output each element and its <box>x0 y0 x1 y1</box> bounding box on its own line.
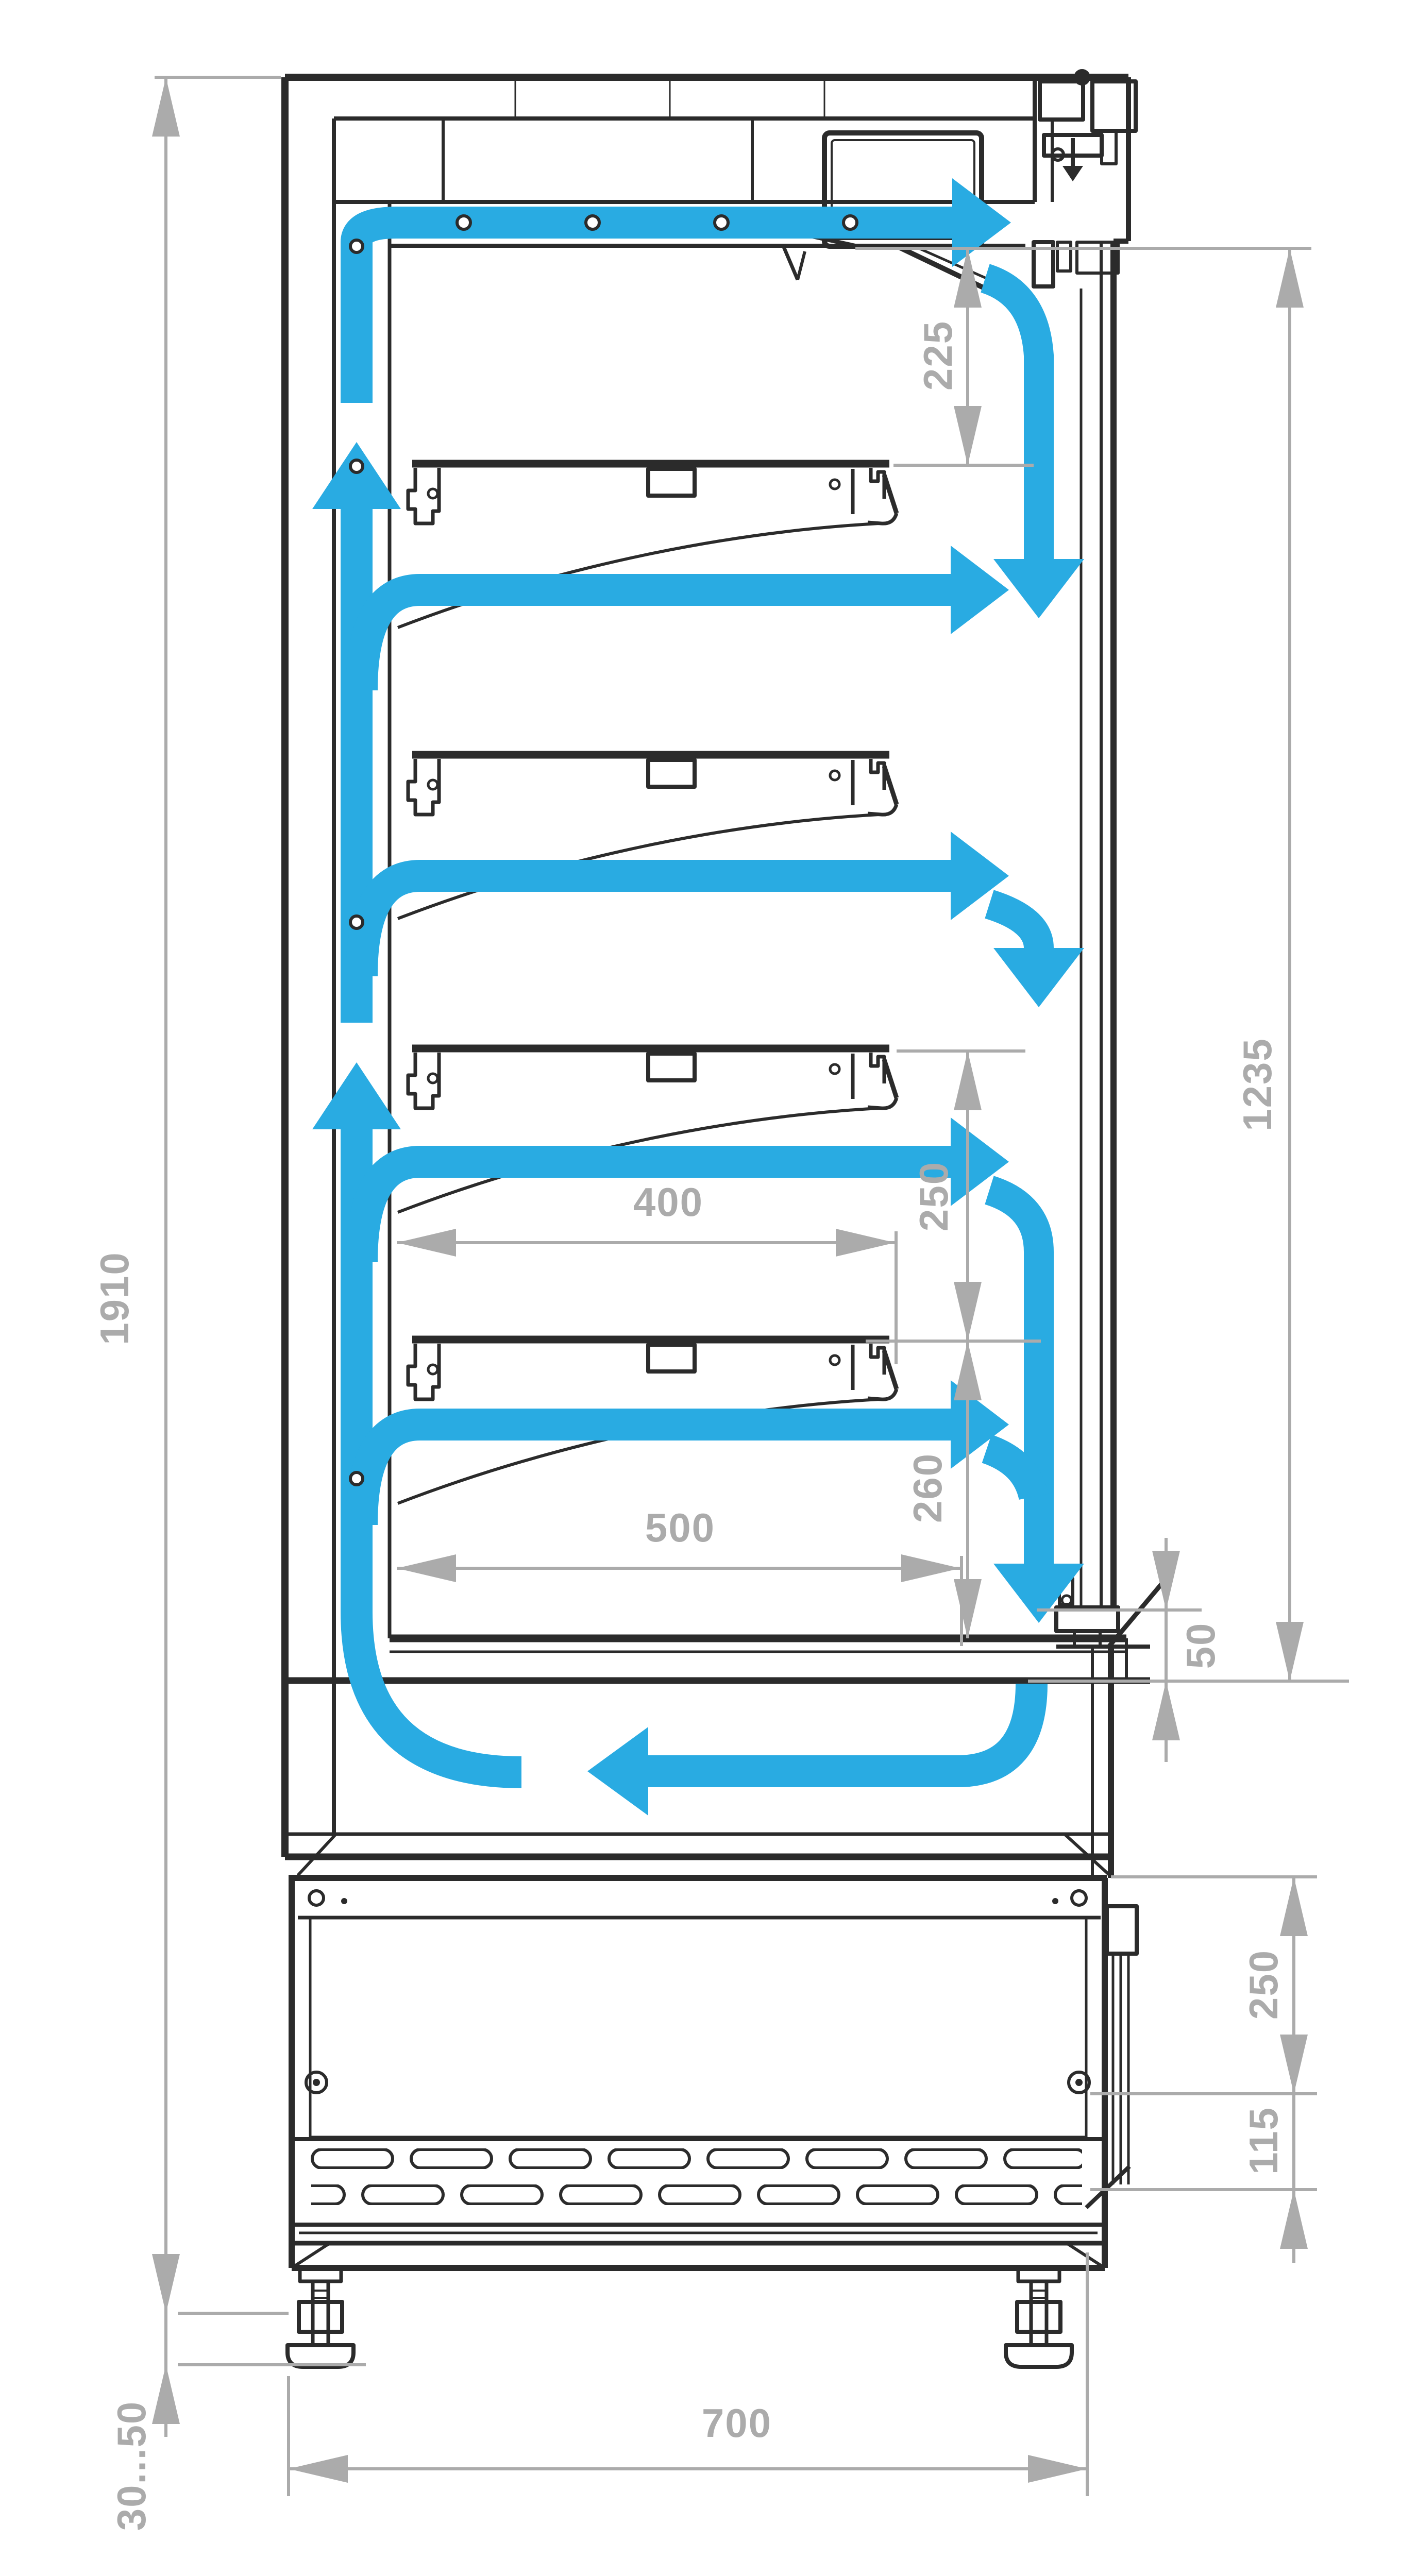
dim-label-air-curtain-height: 1235 <box>1235 1038 1280 1131</box>
canopy-assembly <box>334 77 1052 289</box>
air-curtain-merge <box>987 1449 1034 1497</box>
dimension-grille-height: 115 <box>1090 2094 1317 2263</box>
machine-compartment <box>289 1878 1137 2268</box>
duct-hole <box>350 240 363 252</box>
dim-label-machine-height: 250 <box>1241 1950 1286 2020</box>
dim-label-shelf-depth: 400 <box>633 1179 703 1225</box>
duct-hole <box>715 216 728 229</box>
dim-label-overall-height: 1910 <box>92 1251 137 1345</box>
grille-slot-row-2 <box>311 2184 1082 2205</box>
airflow-arrowhead-down <box>993 948 1084 1007</box>
airflow-arrowhead-right <box>951 546 1009 634</box>
duct-hole <box>844 216 857 229</box>
door-hinge-assembly <box>1034 69 1136 286</box>
dimension-air-curtain-height: 1235 <box>1235 248 1304 1681</box>
dim-label-overall-depth: 700 <box>702 2400 772 2446</box>
dim-label-base-shelf-depth: 500 <box>645 1505 715 1550</box>
grille-slot-row-1 <box>309 2148 1082 2169</box>
corner-screw <box>1072 1891 1086 1905</box>
airflow-shelf-1 <box>362 590 951 690</box>
dim-label-top-clearance: 225 <box>915 320 960 391</box>
dimension-bottom-clearance: 260 <box>905 1341 982 1638</box>
dim-label-bottom-clearance: 260 <box>905 1453 950 1523</box>
duct-hole <box>350 916 363 928</box>
dimension-machine-height: 250 <box>1090 1877 1317 2094</box>
ventilation-grille <box>292 2139 1105 2268</box>
duct-hole <box>457 216 470 229</box>
dimension-base-shelf-depth: 500 <box>397 1505 961 1646</box>
dimension-overall-depth: 700 <box>289 2252 1087 2496</box>
airflow-arrowhead-up <box>312 442 401 509</box>
dimension-overall-height: 1910 <box>92 77 289 2437</box>
dim-label-foot-adjust: 30...50 <box>109 2401 154 2531</box>
corner-screw <box>309 1891 324 1905</box>
adjustable-foot-left <box>288 2268 353 2367</box>
air-curtain-segment-3 <box>989 1190 1039 1564</box>
cross-section-diagram: 1910 30...50 225 1235 <box>0 0 1417 2576</box>
dim-label-shelf-spacing: 250 <box>911 1161 956 1231</box>
duct-hole <box>350 1472 363 1485</box>
dim-label-front-gap: 50 <box>1178 1622 1223 1669</box>
mount-direction-arrow-icon <box>1062 166 1083 181</box>
condenser-bracket <box>1107 1906 1137 1954</box>
base-transition <box>285 1834 1113 1876</box>
airflow-bottom-return <box>648 1684 1032 1771</box>
shelf-2 <box>398 755 897 919</box>
airflow-shelf-2 <box>362 876 951 976</box>
duct-hole <box>586 216 599 229</box>
air-curtain-segment-2 <box>989 904 1039 948</box>
airflow-arrowhead-down <box>993 1564 1084 1623</box>
adjustable-foot-right <box>1006 2268 1072 2367</box>
cabinet-outline <box>285 77 1128 1857</box>
airflow-arrowhead-up <box>312 1062 401 1129</box>
dim-label-grille-height: 115 <box>1241 2107 1286 2175</box>
airflow-arrowhead-left <box>587 1727 648 1816</box>
dimension-foot-adjust: 30...50 <box>109 2365 366 2531</box>
glass-door <box>1056 241 1118 1647</box>
duct-hole <box>350 460 363 472</box>
air-curtain-segment-1 <box>985 278 1039 559</box>
